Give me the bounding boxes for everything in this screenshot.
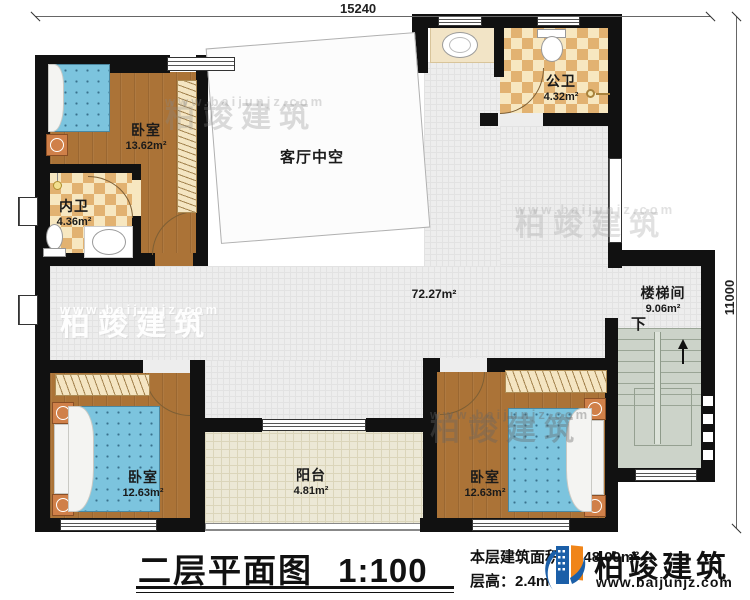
- toilet-innerbath-tank: [43, 248, 66, 257]
- label-stair-down: 下: [631, 313, 647, 334]
- wall-innerbath-right-b: [132, 216, 141, 260]
- label-inner-bath: 内卫 4.36m²: [57, 196, 92, 228]
- stair-wall-gap: [703, 432, 713, 442]
- wardrobe-bottom-right: [505, 370, 607, 393]
- window-top-publicbath: [537, 16, 580, 26]
- shower-arm: [596, 93, 610, 95]
- wall-bedroomBR-left: [423, 358, 437, 532]
- plan-title: 二层平面图 1:100: [138, 544, 428, 592]
- stair-wall-gap: [703, 450, 713, 460]
- wall-stair-right: [701, 250, 715, 482]
- wall-bedroomBL-right: [190, 360, 205, 532]
- wall-balcony-b: [366, 418, 437, 432]
- toilet-publicbath-bowl: [541, 36, 563, 62]
- window-right-corridor: [608, 158, 622, 243]
- living-void-area: [206, 32, 431, 244]
- lamp-icon: [53, 181, 62, 190]
- label-corridor-area: 72.27m²: [412, 287, 457, 301]
- dimension-line-right: [736, 16, 737, 528]
- room-area: 4.36m²: [57, 216, 92, 228]
- corridor-floor: [50, 266, 608, 362]
- room-name: 客厅中空: [280, 146, 344, 167]
- label-stairwell: 楼梯间 9.06m²: [641, 283, 686, 315]
- door-gap-innerbath: [132, 180, 141, 216]
- wall-publicbath-bottom-a: [480, 113, 498, 126]
- brand-logo-icon: [540, 538, 590, 592]
- window-left-innerbath: [18, 197, 38, 226]
- room-area: 4.81m²: [294, 485, 329, 497]
- label-bedroom-bottom-left: 卧室 12.63m²: [123, 467, 164, 499]
- floor-plan: 柏竣建筑 www.baijunjz.com 柏竣建筑 www.baijunjz.…: [0, 0, 750, 600]
- title-underline-thick: [136, 586, 454, 589]
- stair-wall-gap: [703, 414, 713, 424]
- dimension-right-value: 11000: [722, 280, 737, 315]
- corridor-floor-upper2: [500, 126, 608, 266]
- room-area: 13.62m²: [126, 140, 167, 152]
- stair-wall-gap: [703, 396, 713, 406]
- plan-scale: 1:100: [338, 552, 427, 589]
- dimension-line-top: [35, 16, 711, 17]
- wall-right-upper: [608, 14, 622, 160]
- sink-innerbath: [92, 229, 126, 255]
- corridor-floor-upper: [424, 62, 502, 266]
- wall-innerbath-top: [50, 164, 140, 173]
- stair-inner-rail: [634, 388, 692, 446]
- room-area: 9.06m²: [641, 303, 686, 315]
- window-left-corridor: [18, 295, 38, 325]
- room-name: 楼梯间: [641, 283, 686, 303]
- stair-center-rail: [654, 332, 661, 444]
- door-gap-bedroomBL: [143, 360, 190, 373]
- floor-height-row: 层高：2.4m: [470, 570, 549, 591]
- room-area: 72.27m²: [412, 287, 457, 301]
- balcony-railing: [205, 523, 423, 531]
- corridor-floor-mid: [205, 360, 423, 420]
- label-bedroom-top-left: 卧室 13.62m²: [126, 120, 167, 152]
- room-area: 4.32m²: [544, 91, 579, 103]
- room-name: 阳台: [294, 465, 329, 485]
- floor-height-label: 层高：: [470, 573, 515, 590]
- door-gap-bedroomBR: [440, 358, 487, 372]
- wall-stair-top: [608, 250, 715, 266]
- room-name: 卧室: [123, 467, 164, 487]
- wall-bedroomTL-right: [196, 55, 208, 258]
- dimension-top-value: 15240: [340, 1, 376, 16]
- wall-publicbath-bottom-b: [543, 113, 608, 126]
- door-gap-publicbath: [498, 113, 543, 126]
- window-bottom-bedroomBL: [60, 519, 157, 531]
- brand-url: www.baijunjz.com: [596, 574, 733, 590]
- nightstand: [46, 134, 68, 156]
- sink-nook-basin: [449, 37, 471, 53]
- title-underline-thin: [136, 592, 454, 593]
- window-bottom-bedroomBR: [472, 519, 570, 531]
- stair-direction: 下: [631, 313, 647, 334]
- room-name: 卧室: [465, 467, 506, 487]
- room-name: 卧室: [126, 120, 167, 140]
- window-top-sink-nook: [438, 16, 482, 26]
- wardrobe-top-left: [177, 80, 197, 213]
- room-name: 公卫: [544, 71, 579, 91]
- wall-innerbath-right-a: [132, 164, 141, 180]
- title-bar: 二层平面图 1:100 本层建筑面积：148.09m² 层高：2.4m 柏竣建筑…: [0, 538, 750, 600]
- wall-balcony-a: [190, 418, 262, 432]
- window-top-bedroomTL: [167, 57, 235, 71]
- label-public-bath: 公卫 4.32m²: [544, 71, 579, 103]
- plan-title-text: 二层平面图: [138, 552, 313, 589]
- label-bedroom-bottom-right: 卧室 12.63m²: [465, 467, 506, 499]
- label-balcony: 阳台 4.81m²: [294, 465, 329, 497]
- wardrobe-bottom-left: [55, 374, 150, 396]
- window-stairwell: [635, 469, 697, 481]
- room-area: 12.63m²: [465, 487, 506, 499]
- room-name: 内卫: [57, 196, 92, 216]
- shower-icon: [586, 89, 595, 98]
- window-balcony-slider: [262, 419, 366, 431]
- stair-up-arrow-head: [678, 334, 688, 349]
- label-living-void: 客厅中空: [280, 146, 344, 167]
- wall-stair-left: [605, 318, 618, 532]
- bed-sheet: [566, 408, 592, 512]
- room-area: 12.63m²: [123, 487, 164, 499]
